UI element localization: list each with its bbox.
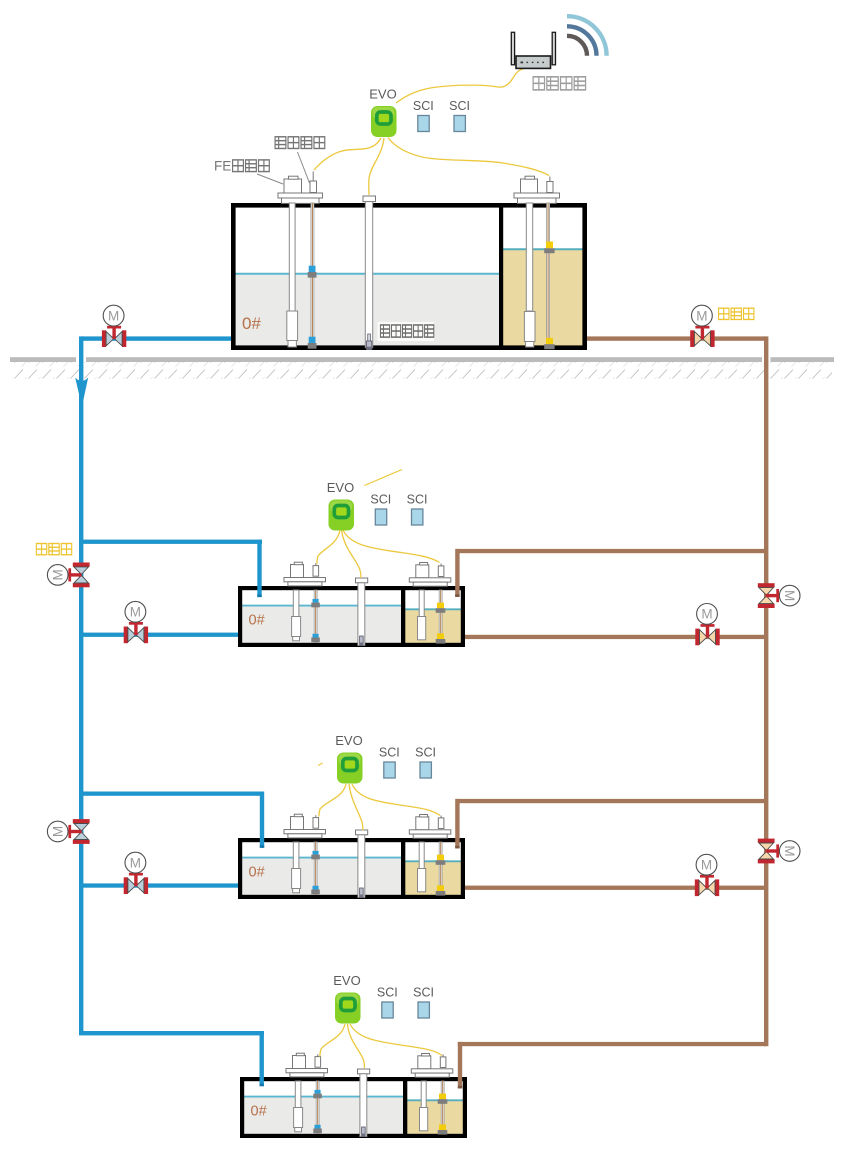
svg-text:0#: 0#: [242, 314, 261, 333]
svg-text:FE: FE: [214, 159, 231, 174]
